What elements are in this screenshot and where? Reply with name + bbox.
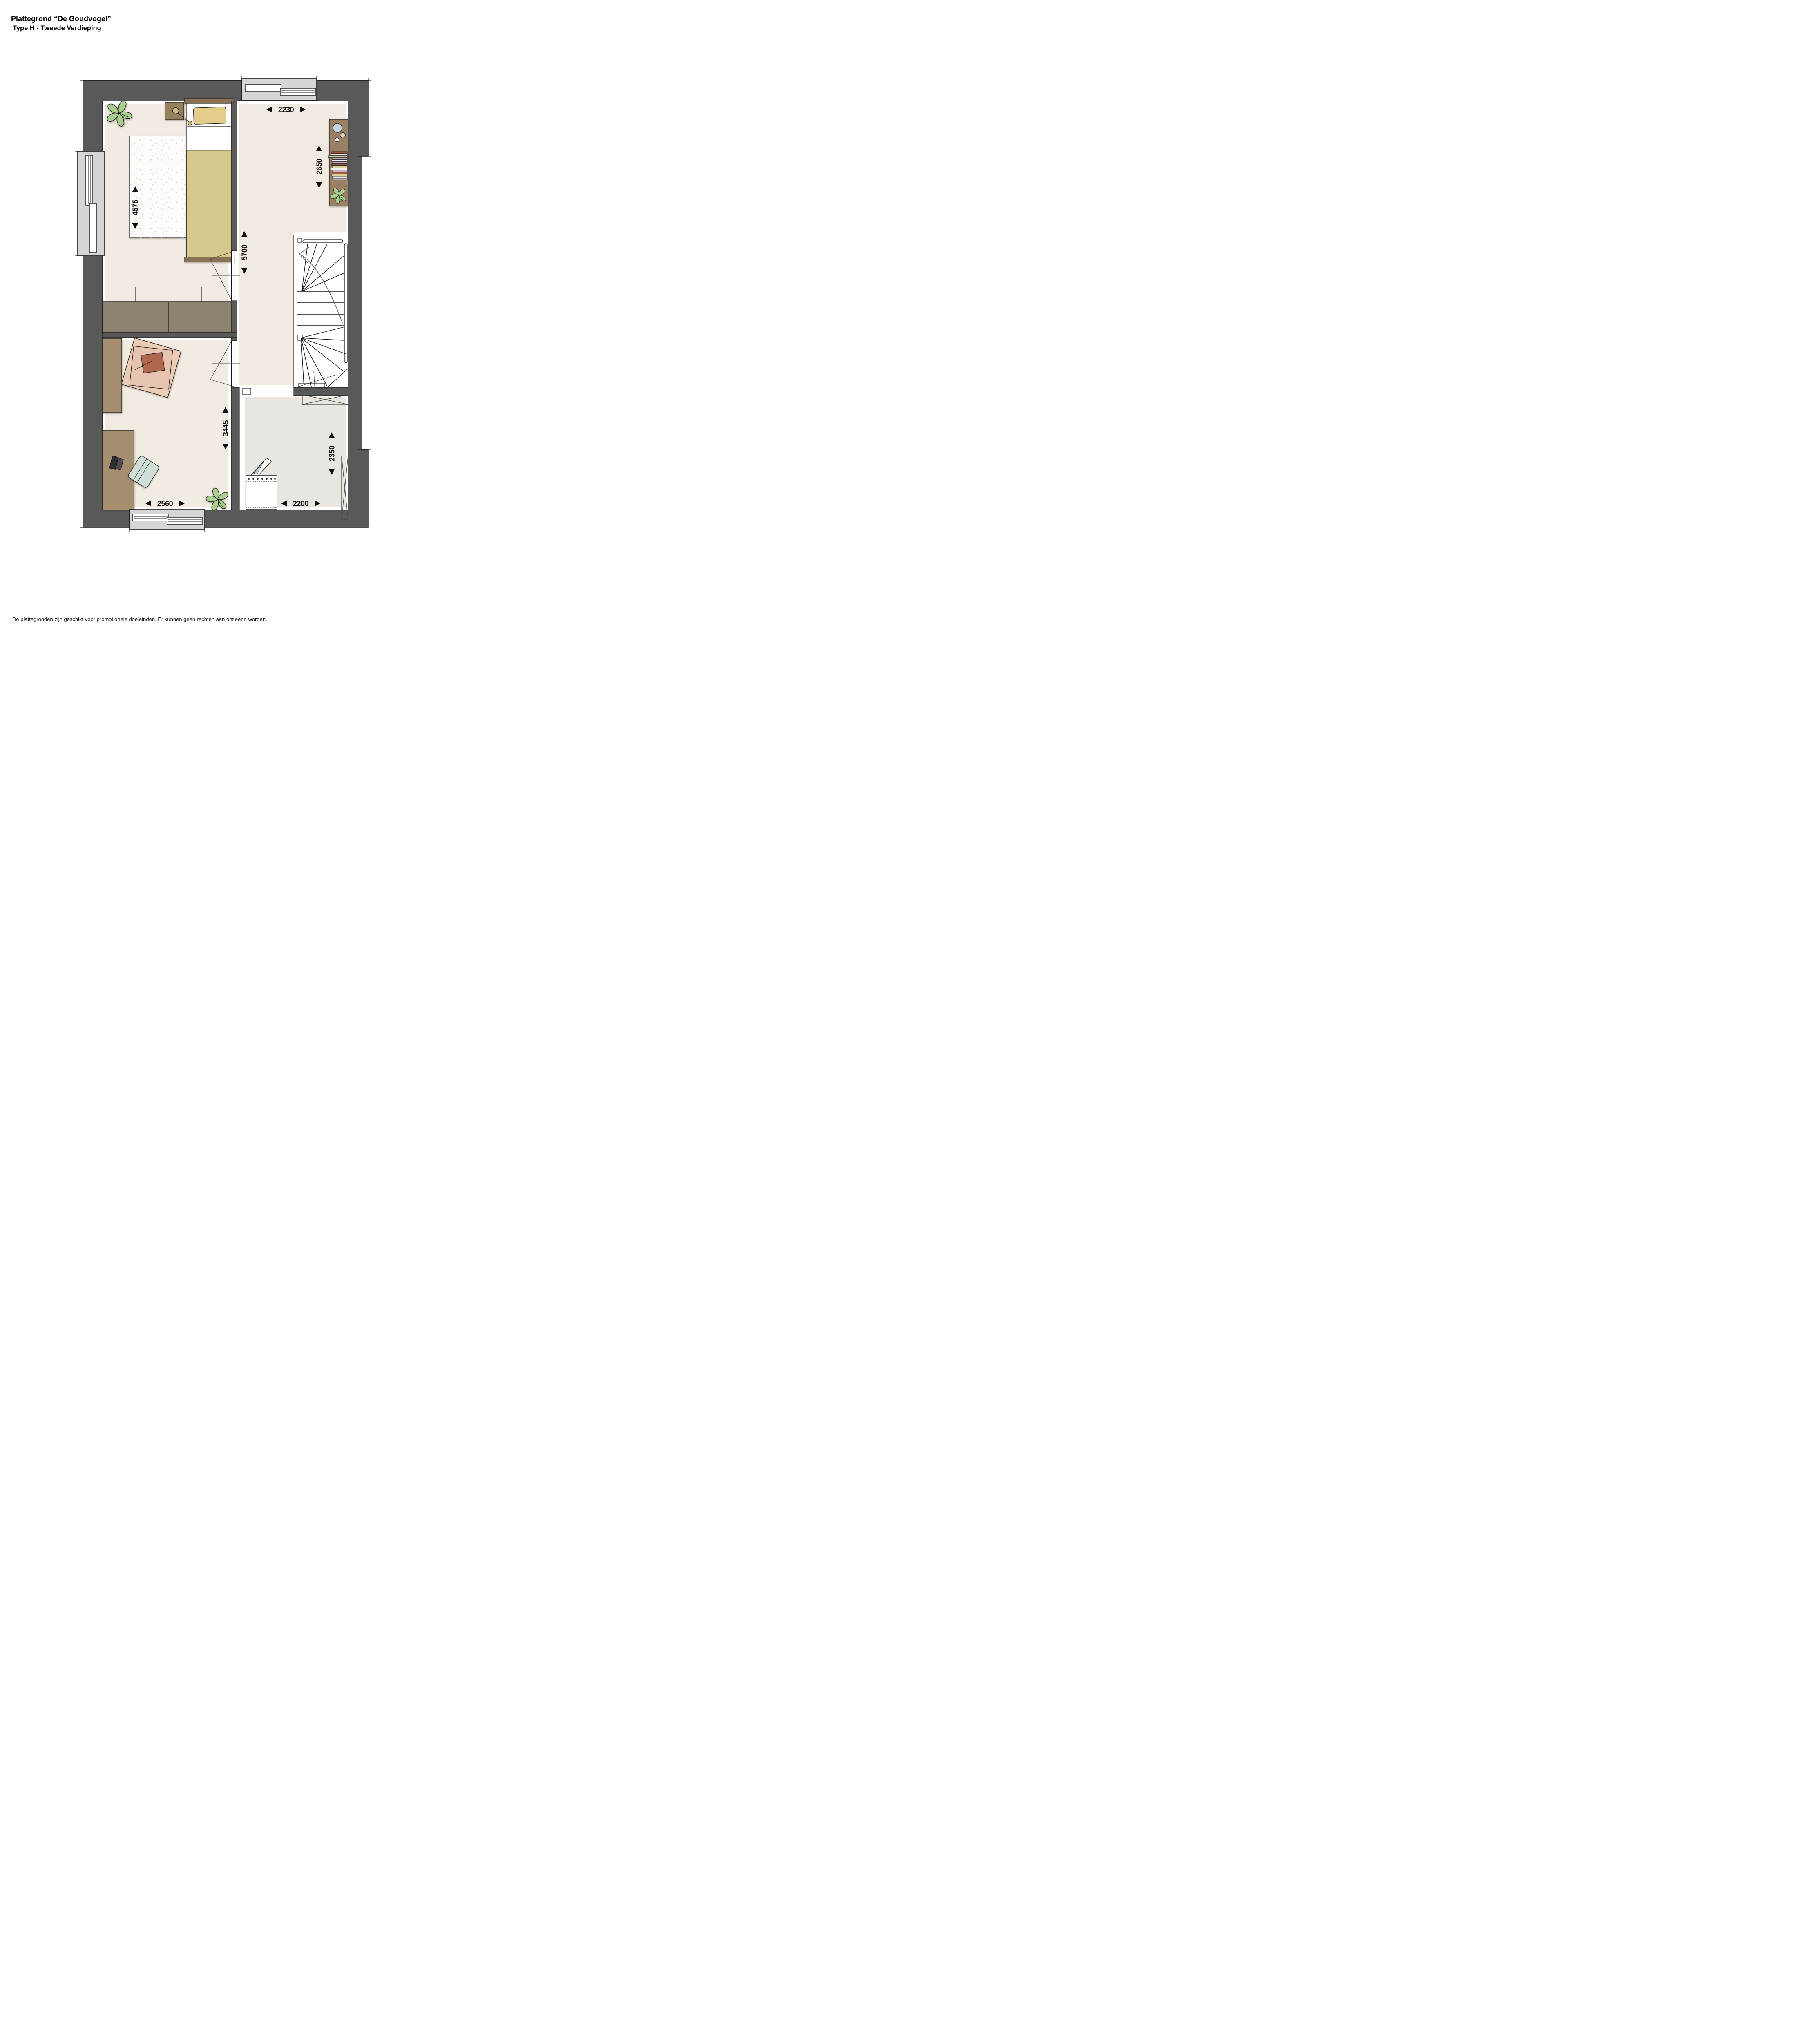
stairwell-wall bbox=[294, 239, 297, 387]
window-top bbox=[239, 76, 319, 100]
floorplan-canvas: Plattegrond “De Goudvogel” Type H - Twee… bbox=[0, 0, 451, 637]
wall-bedroom-landing-upper bbox=[231, 101, 237, 251]
svg-text:3445: 3445 bbox=[222, 420, 230, 436]
stair-direction-arrow-icon bbox=[299, 247, 342, 323]
svg-text:2560: 2560 bbox=[157, 500, 173, 508]
bed-footboard bbox=[185, 257, 234, 262]
svg-text:2230: 2230 bbox=[278, 106, 294, 114]
wall-office-laundry bbox=[231, 387, 239, 510]
staircase bbox=[294, 235, 348, 388]
lamp-icon bbox=[173, 108, 179, 114]
stair-bottom-edge bbox=[326, 368, 348, 388]
office-door-leaf bbox=[232, 341, 234, 387]
svg-text:2350: 2350 bbox=[328, 445, 336, 461]
desk bbox=[103, 430, 134, 510]
office-cabinet bbox=[103, 338, 122, 413]
stair-winders-lower bbox=[301, 327, 346, 387]
floorplan-page: Plattegrond “De Goudvogel” Type H - Twee… bbox=[0, 0, 451, 637]
svg-text:2200: 2200 bbox=[293, 500, 309, 508]
handrail-right bbox=[344, 244, 347, 363]
bookshelf bbox=[328, 119, 350, 206]
beanbag-cushion bbox=[141, 353, 165, 373]
wall-office-hall-stub bbox=[231, 338, 237, 341]
footer-disclaimer: De plattegronden zijn geschikt voor prom… bbox=[12, 616, 267, 622]
bedroom-door-leaf bbox=[232, 251, 234, 301]
bed-blanket bbox=[187, 150, 232, 257]
header: Plattegrond “De Goudvogel” Type H - Twee… bbox=[11, 15, 123, 36]
bed-headboard bbox=[185, 98, 234, 103]
svg-text:5700: 5700 bbox=[241, 244, 249, 260]
wall-hall-laundry bbox=[294, 387, 348, 396]
wall-bedroom-office bbox=[103, 332, 237, 338]
page-subtitle: Type H - Tweede Verdieping bbox=[13, 25, 101, 32]
stair-treads bbox=[297, 291, 344, 326]
stair-winders-upper bbox=[302, 243, 344, 291]
svg-text:2650: 2650 bbox=[315, 159, 324, 174]
svg-text:4575: 4575 bbox=[132, 199, 140, 215]
window-left bbox=[75, 151, 104, 256]
window-bottom bbox=[130, 510, 205, 532]
bedroom-rug bbox=[130, 136, 186, 238]
page-title: Plattegrond “De Goudvogel” bbox=[11, 15, 111, 23]
bed-pillow bbox=[193, 107, 226, 125]
wall-hall-laundry-stub bbox=[243, 388, 251, 395]
handrail-top bbox=[303, 240, 343, 243]
